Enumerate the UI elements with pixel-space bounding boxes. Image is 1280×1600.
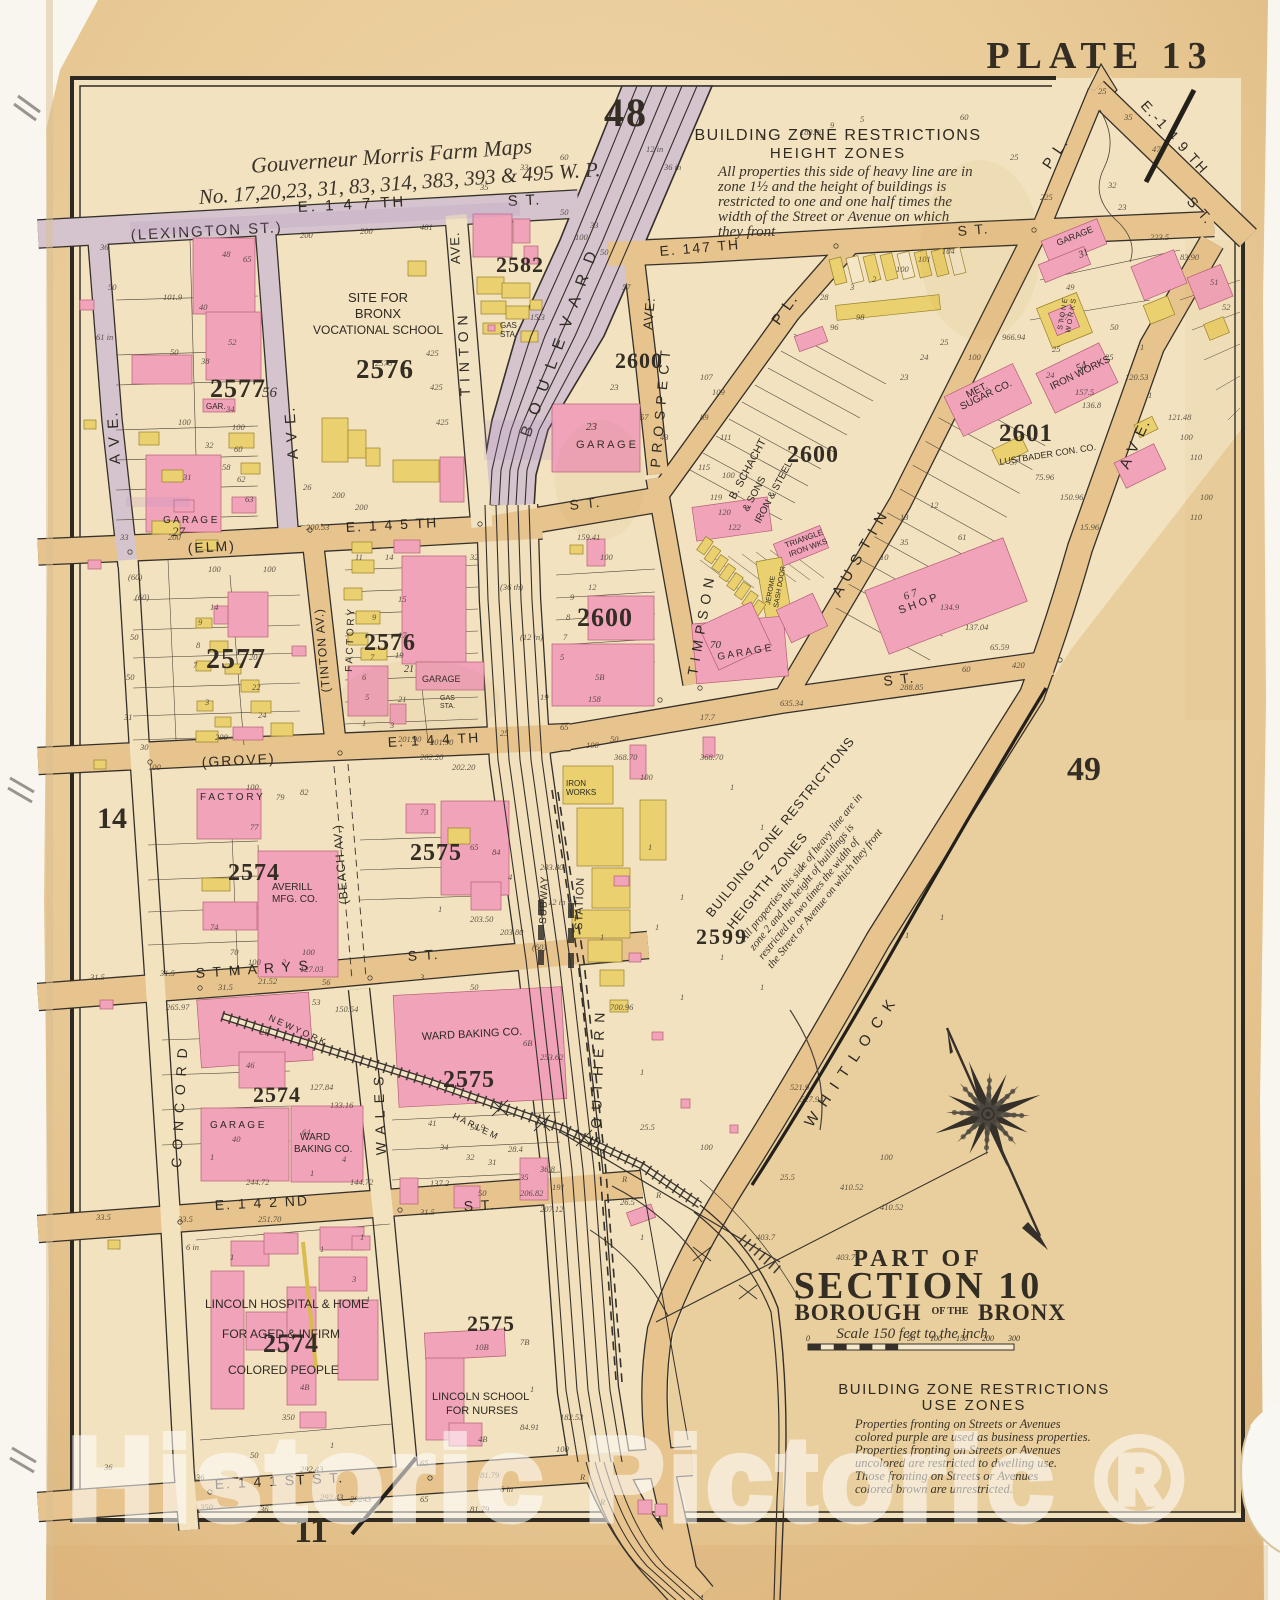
svg-text:32: 32 <box>465 1152 475 1162</box>
svg-text:48: 48 <box>604 90 648 135</box>
svg-text:27: 27 <box>172 524 186 539</box>
svg-text:1: 1 <box>640 1232 644 1242</box>
svg-text:AVE.: AVE. <box>447 231 463 264</box>
svg-text:14: 14 <box>97 802 127 835</box>
svg-text:GAS: GAS <box>500 321 517 330</box>
svg-text:150: 150 <box>956 1334 968 1343</box>
svg-text:50: 50 <box>907 1334 915 1343</box>
svg-text:1: 1 <box>730 782 734 792</box>
svg-text:22: 22 <box>252 682 261 692</box>
svg-text:36: 36 <box>99 242 109 252</box>
svg-text:79: 79 <box>276 792 285 802</box>
svg-text:33.5: 33.5 <box>95 1212 111 1222</box>
svg-text:26.5: 26.5 <box>620 1197 635 1207</box>
svg-text:FOR AGED & INFIRM: FOR AGED & INFIRM <box>222 1327 340 1341</box>
svg-text:0: 0 <box>806 1334 810 1343</box>
svg-text:1: 1 <box>940 912 944 922</box>
svg-text:15: 15 <box>398 594 407 604</box>
svg-text:1: 1 <box>310 1168 314 1178</box>
svg-text:28: 28 <box>820 292 829 302</box>
svg-text:23: 23 <box>1118 202 1127 212</box>
svg-text:300: 300 <box>1007 1334 1020 1343</box>
svg-text:WARD: WARD <box>300 1132 330 1143</box>
svg-text:100: 100 <box>722 470 736 480</box>
svg-text:12: 12 <box>930 500 939 510</box>
svg-text:265.97: 265.97 <box>166 1002 190 1012</box>
svg-text:62: 62 <box>237 474 246 484</box>
svg-text:420: 420 <box>1012 660 1026 670</box>
svg-text:46: 46 <box>246 1060 255 1070</box>
svg-text:1: 1 <box>680 892 684 902</box>
svg-text:5: 5 <box>560 652 564 662</box>
svg-text:13: 13 <box>900 512 909 522</box>
svg-text:41: 41 <box>428 1118 437 1128</box>
svg-text:65.59: 65.59 <box>990 642 1010 652</box>
svg-text:31: 31 <box>487 1157 497 1167</box>
svg-text:144.72: 144.72 <box>350 1177 374 1187</box>
svg-text:100: 100 <box>302 947 316 957</box>
svg-text:200.53: 200.53 <box>306 522 329 532</box>
svg-text:25: 25 <box>500 728 509 738</box>
svg-text:25.5: 25.5 <box>780 1172 795 1182</box>
svg-text:82: 82 <box>300 787 309 797</box>
svg-text:2577: 2577 <box>206 644 266 675</box>
svg-text:109: 109 <box>712 387 726 397</box>
svg-text:101.9: 101.9 <box>163 292 183 302</box>
svg-text:134.9: 134.9 <box>940 602 960 612</box>
svg-text:35: 35 <box>899 537 909 547</box>
svg-text:368.70: 368.70 <box>613 752 638 762</box>
svg-text:52: 52 <box>228 337 237 347</box>
svg-text:157.5: 157.5 <box>1075 387 1094 397</box>
svg-text:2575: 2575 <box>467 1311 515 1336</box>
svg-text:17.7: 17.7 <box>700 712 716 722</box>
svg-text:60: 60 <box>960 112 969 122</box>
svg-text:24: 24 <box>1046 370 1055 380</box>
svg-text:2575: 2575 <box>410 840 462 866</box>
svg-text:1: 1 <box>230 1252 234 1262</box>
svg-text:410.52: 410.52 <box>880 1202 904 1212</box>
svg-text:107: 107 <box>700 372 714 382</box>
svg-text:100: 100 <box>640 772 654 782</box>
svg-text:4B: 4B <box>300 1382 309 1392</box>
svg-text:56: 56 <box>262 385 278 401</box>
svg-text:31.5: 31.5 <box>89 972 105 982</box>
svg-text:191: 191 <box>552 1182 565 1192</box>
svg-text:50: 50 <box>560 207 569 217</box>
svg-text:10: 10 <box>880 552 889 562</box>
svg-text:200: 200 <box>332 490 346 500</box>
svg-text:1: 1 <box>720 952 724 962</box>
svg-text:200: 200 <box>360 226 374 236</box>
svg-text:48: 48 <box>222 249 231 259</box>
svg-text:31: 31 <box>123 712 133 722</box>
svg-text:HEIGHT ZONES: HEIGHT ZONES <box>770 145 906 162</box>
svg-text:3: 3 <box>849 282 854 292</box>
svg-text:WORKS: WORKS <box>566 788 596 797</box>
svg-text:(ELM): (ELM) <box>187 537 236 555</box>
svg-text:25: 25 <box>1052 344 1061 354</box>
svg-text:GAR.: GAR. <box>206 402 226 411</box>
svg-text:2575: 2575 <box>443 1067 495 1093</box>
svg-text:2574: 2574 <box>253 1082 301 1107</box>
svg-text:S T.: S T. <box>463 1196 496 1214</box>
svg-text:50: 50 <box>126 672 135 682</box>
svg-text:BRONX: BRONX <box>355 306 402 321</box>
svg-text:24: 24 <box>258 710 267 720</box>
svg-text:119: 119 <box>710 492 723 502</box>
svg-text:2600: 2600 <box>787 442 839 468</box>
svg-text:34: 34 <box>439 1142 449 1152</box>
svg-text:1: 1 <box>1140 342 1144 352</box>
svg-text:50: 50 <box>130 632 139 642</box>
svg-text:35: 35 <box>519 1172 529 1182</box>
svg-text:111: 111 <box>720 432 732 442</box>
svg-text:203.50: 203.50 <box>470 914 494 924</box>
svg-text:60: 60 <box>962 664 971 674</box>
svg-text:70: 70 <box>710 639 722 651</box>
svg-text:61: 61 <box>958 532 967 542</box>
svg-text:(60): (60) <box>128 572 142 582</box>
svg-text:635.34: 635.34 <box>780 698 804 708</box>
svg-text:100: 100 <box>880 1152 894 1162</box>
svg-text:BOROUGH: BOROUGH <box>794 1300 921 1325</box>
svg-text:77: 77 <box>250 822 259 832</box>
svg-text:W A L E S: W A L E S <box>370 1074 389 1155</box>
svg-text:89: 89 <box>700 412 709 422</box>
svg-text:100: 100 <box>148 762 162 772</box>
svg-text:158: 158 <box>588 694 602 704</box>
svg-text:425: 425 <box>436 417 449 427</box>
svg-text:98: 98 <box>856 312 865 322</box>
svg-text:2576: 2576 <box>356 354 414 384</box>
svg-text:122: 122 <box>728 522 742 532</box>
svg-text:12 in: 12 in <box>646 144 663 154</box>
svg-text:65: 65 <box>560 722 569 732</box>
svg-text:1: 1 <box>360 1232 364 1242</box>
svg-text:MFG. CO.: MFG. CO. <box>272 894 318 905</box>
svg-text:OF THE: OF THE <box>932 1306 969 1317</box>
svg-text:1: 1 <box>1148 390 1152 400</box>
svg-text:width of the Street or Avenue: width of the Street or Avenue on which <box>718 209 949 225</box>
svg-text:58: 58 <box>222 462 231 472</box>
svg-text:1: 1 <box>760 822 764 832</box>
svg-text:100: 100 <box>700 1142 714 1152</box>
svg-text:56: 56 <box>322 977 331 987</box>
svg-text:2577: 2577 <box>210 374 266 403</box>
svg-text:31.5: 31.5 <box>217 982 233 992</box>
svg-text:253.62: 253.62 <box>540 1052 564 1062</box>
svg-text:3: 3 <box>204 697 209 707</box>
svg-text:100: 100 <box>178 417 192 427</box>
svg-text:24: 24 <box>920 352 929 362</box>
svg-text:57: 57 <box>622 282 631 292</box>
svg-text:84: 84 <box>492 847 501 857</box>
svg-text:1: 1 <box>680 992 684 1002</box>
svg-text:R: R <box>655 1190 662 1200</box>
svg-text:127.84: 127.84 <box>310 1082 334 1092</box>
svg-text:34: 34 <box>225 404 235 414</box>
svg-text:2600: 2600 <box>615 348 663 373</box>
svg-text:36 in: 36 in <box>663 162 681 172</box>
svg-text:63: 63 <box>245 494 254 504</box>
svg-text:BRONX: BRONX <box>978 1300 1066 1325</box>
svg-text:75.96: 75.96 <box>1035 472 1055 482</box>
svg-text:11: 11 <box>355 552 363 562</box>
svg-text:12: 12 <box>588 582 597 592</box>
svg-text:200: 200 <box>300 230 314 240</box>
svg-text:368.70: 368.70 <box>699 752 724 762</box>
svg-text:30: 30 <box>139 742 149 752</box>
svg-text:36.8: 36.8 <box>539 1164 556 1174</box>
svg-text:53: 53 <box>312 997 321 1007</box>
svg-text:26: 26 <box>303 482 312 492</box>
svg-text:28.4: 28.4 <box>508 1144 524 1154</box>
svg-text:38: 38 <box>200 356 210 366</box>
svg-text:35: 35 <box>1123 112 1133 122</box>
svg-text:BAKING CO.: BAKING CO. <box>294 1144 352 1155</box>
svg-text:150.96: 150.96 <box>1060 492 1084 502</box>
svg-text:STA.: STA. <box>500 330 517 339</box>
svg-text:202.20: 202.20 <box>420 752 444 762</box>
svg-text:57: 57 <box>640 412 649 422</box>
svg-text:R: R <box>621 1174 628 1184</box>
svg-text:F A C T O R Y: F A C T O R Y <box>344 609 357 672</box>
svg-text:SUBWAY: SUBWAY <box>538 876 551 925</box>
svg-text:120.53: 120.53 <box>1125 372 1148 382</box>
svg-text:6B: 6B <box>523 1038 532 1048</box>
svg-text:50: 50 <box>170 347 179 357</box>
svg-text:2601: 2601 <box>999 420 1053 447</box>
svg-text:1: 1 <box>530 1384 534 1394</box>
svg-text:PLATE 13: PLATE 13 <box>986 35 1213 77</box>
svg-text:1: 1 <box>210 1152 214 1162</box>
svg-text:115: 115 <box>698 462 710 472</box>
svg-text:1: 1 <box>438 904 442 914</box>
svg-text:14: 14 <box>385 552 394 562</box>
svg-text:137.04: 137.04 <box>965 622 989 632</box>
svg-text:150.54: 150.54 <box>335 1004 359 1014</box>
svg-text:244.72: 244.72 <box>246 1177 270 1187</box>
svg-text:410.52: 410.52 <box>840 1182 864 1192</box>
svg-text:AVE:: AVE: <box>640 296 658 330</box>
svg-text:10B: 10B <box>475 1342 489 1352</box>
svg-text:133.16: 133.16 <box>330 1100 354 1110</box>
svg-text:21.52: 21.52 <box>258 976 278 986</box>
svg-text:700.96: 700.96 <box>610 1002 634 1012</box>
svg-text:40: 40 <box>199 302 208 312</box>
svg-text:481: 481 <box>420 222 433 232</box>
svg-text:74: 74 <box>210 922 219 932</box>
svg-text:32: 32 <box>469 552 479 562</box>
svg-text:32: 32 <box>1107 180 1117 190</box>
svg-text:LINCOLN HOSPITAL & HOME: LINCOLN HOSPITAL & HOME <box>205 1297 369 1311</box>
svg-text:5B: 5B <box>595 672 604 682</box>
svg-text:50: 50 <box>470 982 479 992</box>
svg-text:SITE FOR: SITE FOR <box>348 290 408 305</box>
svg-text:(36 th): (36 th) <box>500 582 523 592</box>
svg-text:6 in: 6 in <box>186 1242 199 1252</box>
svg-text:Historic Pictoric ®: Historic Pictoric ® <box>68 1414 1188 1546</box>
svg-text:33.5: 33.5 <box>177 1214 193 1224</box>
svg-text:200: 200 <box>982 1334 994 1343</box>
svg-text:425: 425 <box>426 348 439 358</box>
svg-text:223.5: 223.5 <box>1150 232 1169 242</box>
svg-text:23: 23 <box>610 382 619 392</box>
svg-text:7B: 7B <box>520 1337 529 1347</box>
svg-text:S T.: S T. <box>407 946 440 964</box>
svg-text:AVERILL: AVERILL <box>272 882 313 893</box>
svg-text:25.5: 25.5 <box>640 1122 655 1132</box>
svg-text:206.82: 206.82 <box>520 1188 544 1198</box>
svg-text:(12 in): (12 in) <box>520 632 543 642</box>
svg-text:1: 1 <box>640 1067 644 1077</box>
svg-text:100: 100 <box>232 422 246 432</box>
svg-text:31: 31 <box>182 472 192 482</box>
svg-text:403.7: 403.7 <box>756 1232 776 1242</box>
svg-text:1: 1 <box>655 922 659 932</box>
svg-text:2600: 2600 <box>577 603 633 632</box>
svg-text:100: 100 <box>968 352 982 362</box>
svg-text:T I N T O N: T I N T O N <box>454 314 473 396</box>
svg-text:zone 1½ and the height of buil: zone 1½ and the height of buildings is <box>717 179 946 195</box>
svg-text:137.2: 137.2 <box>430 1178 450 1188</box>
svg-text:3: 3 <box>351 1274 356 1284</box>
svg-text:203.80: 203.80 <box>540 862 564 872</box>
svg-text:100: 100 <box>600 552 614 562</box>
svg-text:60: 60 <box>234 444 243 454</box>
svg-text:200: 200 <box>215 732 229 742</box>
svg-text:225: 225 <box>1040 192 1053 202</box>
svg-text:14: 14 <box>210 602 219 612</box>
svg-text:50: 50 <box>610 734 619 744</box>
svg-text:12 in: 12 in <box>548 897 565 907</box>
svg-text:(60): (60) <box>135 592 149 602</box>
svg-text:202.20: 202.20 <box>452 762 476 772</box>
svg-text:1: 1 <box>760 982 764 992</box>
svg-text:USE ZONES: USE ZONES <box>922 1397 1027 1414</box>
svg-text:15.96: 15.96 <box>1080 522 1100 532</box>
svg-text:31.5: 31.5 <box>159 968 175 978</box>
svg-text:100: 100 <box>263 564 277 574</box>
svg-text:restricted to one and one half: restricted to one and one half times the <box>718 194 952 210</box>
svg-text:200: 200 <box>355 502 369 512</box>
svg-text:96: 96 <box>830 322 839 332</box>
svg-text:25: 25 <box>1098 86 1107 96</box>
svg-text:50: 50 <box>1110 322 1119 332</box>
svg-text:70: 70 <box>230 947 239 957</box>
svg-text:2582: 2582 <box>496 252 544 277</box>
svg-text:25: 25 <box>940 337 949 347</box>
svg-text:203.80: 203.80 <box>500 927 524 937</box>
svg-text:61 in: 61 in <box>96 332 113 342</box>
svg-text:1: 1 <box>905 930 909 940</box>
svg-text:1: 1 <box>320 1244 324 1254</box>
svg-text:1: 1 <box>600 932 604 942</box>
svg-text:IRON: IRON <box>566 779 586 788</box>
svg-text:100: 100 <box>930 1334 942 1343</box>
svg-text:STATION: STATION <box>573 877 587 930</box>
svg-text:521.9: 521.9 <box>790 1082 810 1092</box>
svg-text:100: 100 <box>586 740 600 750</box>
svg-text:19: 19 <box>540 692 549 702</box>
svg-text:2576: 2576 <box>364 630 416 656</box>
svg-text:49: 49 <box>1067 751 1101 788</box>
svg-text:100: 100 <box>575 232 589 242</box>
svg-text:2B: 2B <box>260 1027 269 1037</box>
svg-text:All properties this side of he: All properties this side of heavy line a… <box>717 164 973 180</box>
svg-text:207.12: 207.12 <box>540 1204 564 1214</box>
svg-text:251.70: 251.70 <box>258 1214 282 1224</box>
svg-text:50: 50 <box>108 282 117 292</box>
svg-text:65: 65 <box>243 254 252 264</box>
svg-text:LINCOLN SCHOOL: LINCOLN SCHOOL <box>432 1391 529 1403</box>
svg-text:1: 1 <box>648 842 652 852</box>
svg-text:G A R A G E: G A R A G E <box>210 1120 265 1131</box>
svg-text:3: 3 <box>419 972 424 982</box>
svg-text:49: 49 <box>1066 282 1075 292</box>
svg-text:F A C T O R Y: F A C T O R Y <box>200 792 263 803</box>
svg-text:23: 23 <box>900 372 909 382</box>
svg-text:100: 100 <box>246 782 260 792</box>
svg-text:33: 33 <box>119 532 129 542</box>
svg-text:A V E.: A V E. <box>104 410 124 465</box>
svg-text:31.5: 31.5 <box>419 1207 435 1217</box>
svg-text:VOCATIONAL SCHOOL: VOCATIONAL SCHOOL <box>313 323 443 337</box>
svg-text:100: 100 <box>208 564 222 574</box>
svg-text:32: 32 <box>204 440 214 450</box>
svg-text:65: 65 <box>470 842 479 852</box>
svg-text:100: 100 <box>896 264 910 274</box>
svg-text:136.8: 136.8 <box>1082 400 1102 410</box>
svg-text:BUILDING ZONE RESTRICTIONS: BUILDING ZONE RESTRICTIONS <box>694 127 981 144</box>
svg-text:73: 73 <box>420 807 429 817</box>
svg-text:966.94: 966.94 <box>1002 332 1026 342</box>
svg-text:33: 33 <box>589 220 599 230</box>
svg-text:(60): (60) <box>532 942 546 952</box>
svg-text:COLORED PEOPLE: COLORED PEOPLE <box>228 1363 339 1377</box>
svg-text:425: 425 <box>430 382 443 392</box>
svg-text:15.3: 15.3 <box>530 312 545 322</box>
svg-text:25: 25 <box>1010 152 1019 162</box>
svg-text:BUILDING ZONE RESTRICTIONS: BUILDING ZONE RESTRICTIONS <box>838 1381 1110 1398</box>
svg-text:120: 120 <box>718 507 732 517</box>
svg-text:40: 40 <box>232 1134 241 1144</box>
svg-text:5: 5 <box>860 114 864 124</box>
